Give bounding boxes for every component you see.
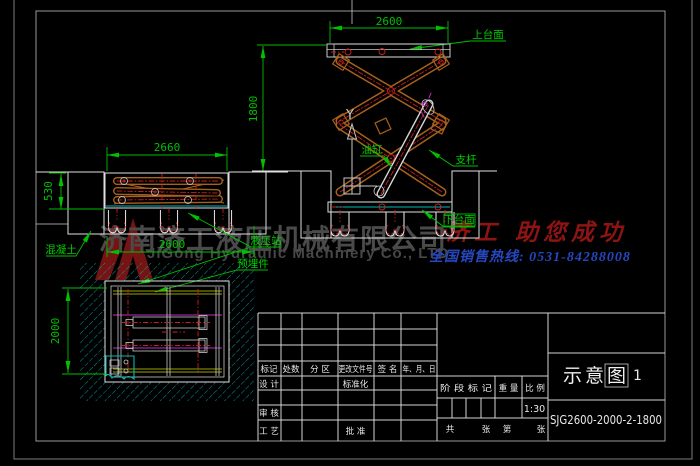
ucs-y-label: Y [345, 108, 354, 123]
tb-header-change-doc: 更改文件号 [339, 364, 373, 375]
tb-header-signature: 签 名 [378, 364, 398, 375]
tb-stage-mark: 阶 段 标 记 [440, 383, 493, 394]
tb-review: 审 核 [259, 408, 279, 419]
collapsed-lift [105, 173, 232, 233]
drawing-sheet: 2600 上台面 1800 [0, 0, 700, 466]
tb-header-date: 年、月、日 [403, 364, 436, 375]
tb-standardization: 标准化 [343, 379, 369, 390]
title-block: 标记 处数 分 区 更改文件号 签 名 年、月、日 设 计 标准化 审 核 工 … [258, 313, 665, 441]
tb-header-zone: 分 区 [310, 365, 330, 375]
drawing-number: SJG2600-2000-2-1800 [550, 413, 662, 427]
cad-canvas: 济南济工液压机械有限公司 JiGong Hydraulic Machinery … [0, 0, 700, 466]
tb-process: 工 艺 [259, 427, 279, 437]
label-lower-platform: 下台面 [443, 213, 475, 226]
tb-scale-value: 1:30 [524, 404, 545, 415]
dim-closed-height: 530 [42, 181, 55, 201]
label-support-rod: 支杆 [456, 153, 477, 166]
dim-platform-width-top: 2600 [376, 15, 403, 28]
pit-section-front [252, 171, 497, 238]
dim-lift-height: 1800 [247, 96, 260, 123]
label-hydraulic-station: 液压站 [250, 234, 282, 247]
tb-sheet-unit1: 张 [482, 425, 491, 435]
tb-approve: 批 准 [346, 426, 366, 437]
plan-view: 2000 [49, 263, 255, 401]
plan-mid-beams [113, 315, 222, 348]
plan-hydraulic-station [106, 356, 134, 379]
plan-centerlines [128, 289, 198, 374]
plan-cross-beams [118, 287, 219, 376]
tb-header-mark: 标记 [260, 364, 278, 375]
drawing-title-cursor: 1 [633, 368, 642, 384]
tb-weight: 重 量 [499, 383, 519, 394]
drawing-title: 示意图 [563, 365, 629, 387]
label-concrete: 混凝土 [45, 243, 77, 256]
plan-cylinders [122, 316, 210, 353]
plan-long-beams [113, 291, 222, 372]
label-upper-platform: 上台面 [472, 28, 504, 41]
tb-sheet-no-label: 第 [503, 424, 512, 435]
label-oil-cylinder: 油缸 [362, 143, 383, 156]
tb-sheet-unit2: 张 [537, 425, 546, 435]
tb-design: 设 计 [259, 379, 279, 390]
dim-pit-width: 2000 [49, 318, 62, 345]
dim-side-platform-length: 2660 [154, 141, 181, 154]
base-frame-front [328, 202, 454, 236]
elevation-view: 2600 上台面 1800 [247, 0, 506, 238]
dim-pit-length: 2600 [159, 238, 186, 251]
tb-sheet-total-label: 共 [446, 425, 455, 435]
tb-header-count: 处数 [282, 364, 300, 375]
tb-scale-label: 比 例 [525, 383, 545, 394]
